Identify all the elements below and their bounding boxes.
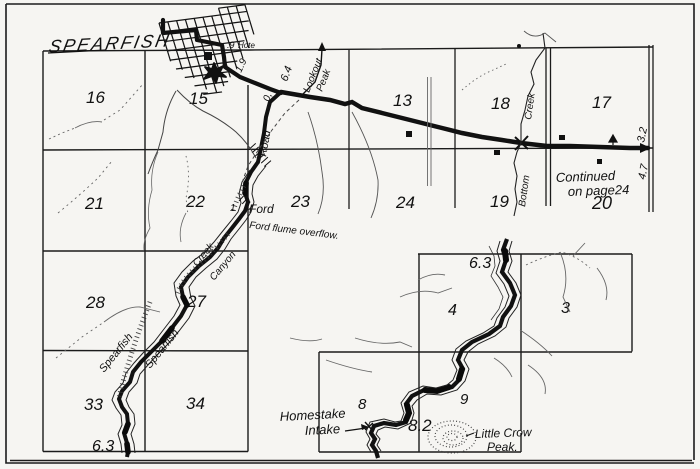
svg-text:19: 19 — [490, 192, 509, 211]
svg-text:24: 24 — [395, 193, 415, 212]
svg-text:1: 1 — [230, 203, 236, 214]
svg-text:34: 34 — [186, 394, 205, 413]
svg-text:4: 4 — [448, 302, 457, 319]
svg-text:6.3: 6.3 — [92, 438, 114, 455]
svg-text:17: 17 — [592, 93, 611, 112]
svg-text:.9: .9 — [227, 40, 235, 50]
svg-text:23: 23 — [290, 192, 310, 211]
svg-text:Hote: Hote — [238, 41, 255, 50]
svg-text:on page24: on page24 — [568, 182, 630, 199]
svg-text:21: 21 — [84, 194, 104, 213]
svg-text:28: 28 — [85, 293, 105, 312]
svg-text:9: 9 — [460, 391, 469, 408]
svg-text:8: 8 — [358, 396, 367, 413]
svg-text:22: 22 — [185, 192, 205, 211]
svg-text:Little Crow: Little Crow — [475, 425, 533, 441]
svg-text:18: 18 — [491, 94, 510, 113]
svg-text:13: 13 — [393, 91, 412, 110]
svg-text:Ford: Ford — [249, 202, 274, 216]
svg-text:6.3: 6.3 — [469, 255, 491, 272]
svg-text:27: 27 — [186, 292, 206, 311]
svg-text:15: 15 — [189, 89, 208, 108]
svg-text:Peak.: Peak. — [487, 440, 518, 454]
svg-text:33: 33 — [84, 395, 103, 414]
svg-text:Intake: Intake — [304, 421, 340, 438]
svg-text:16: 16 — [86, 88, 105, 107]
